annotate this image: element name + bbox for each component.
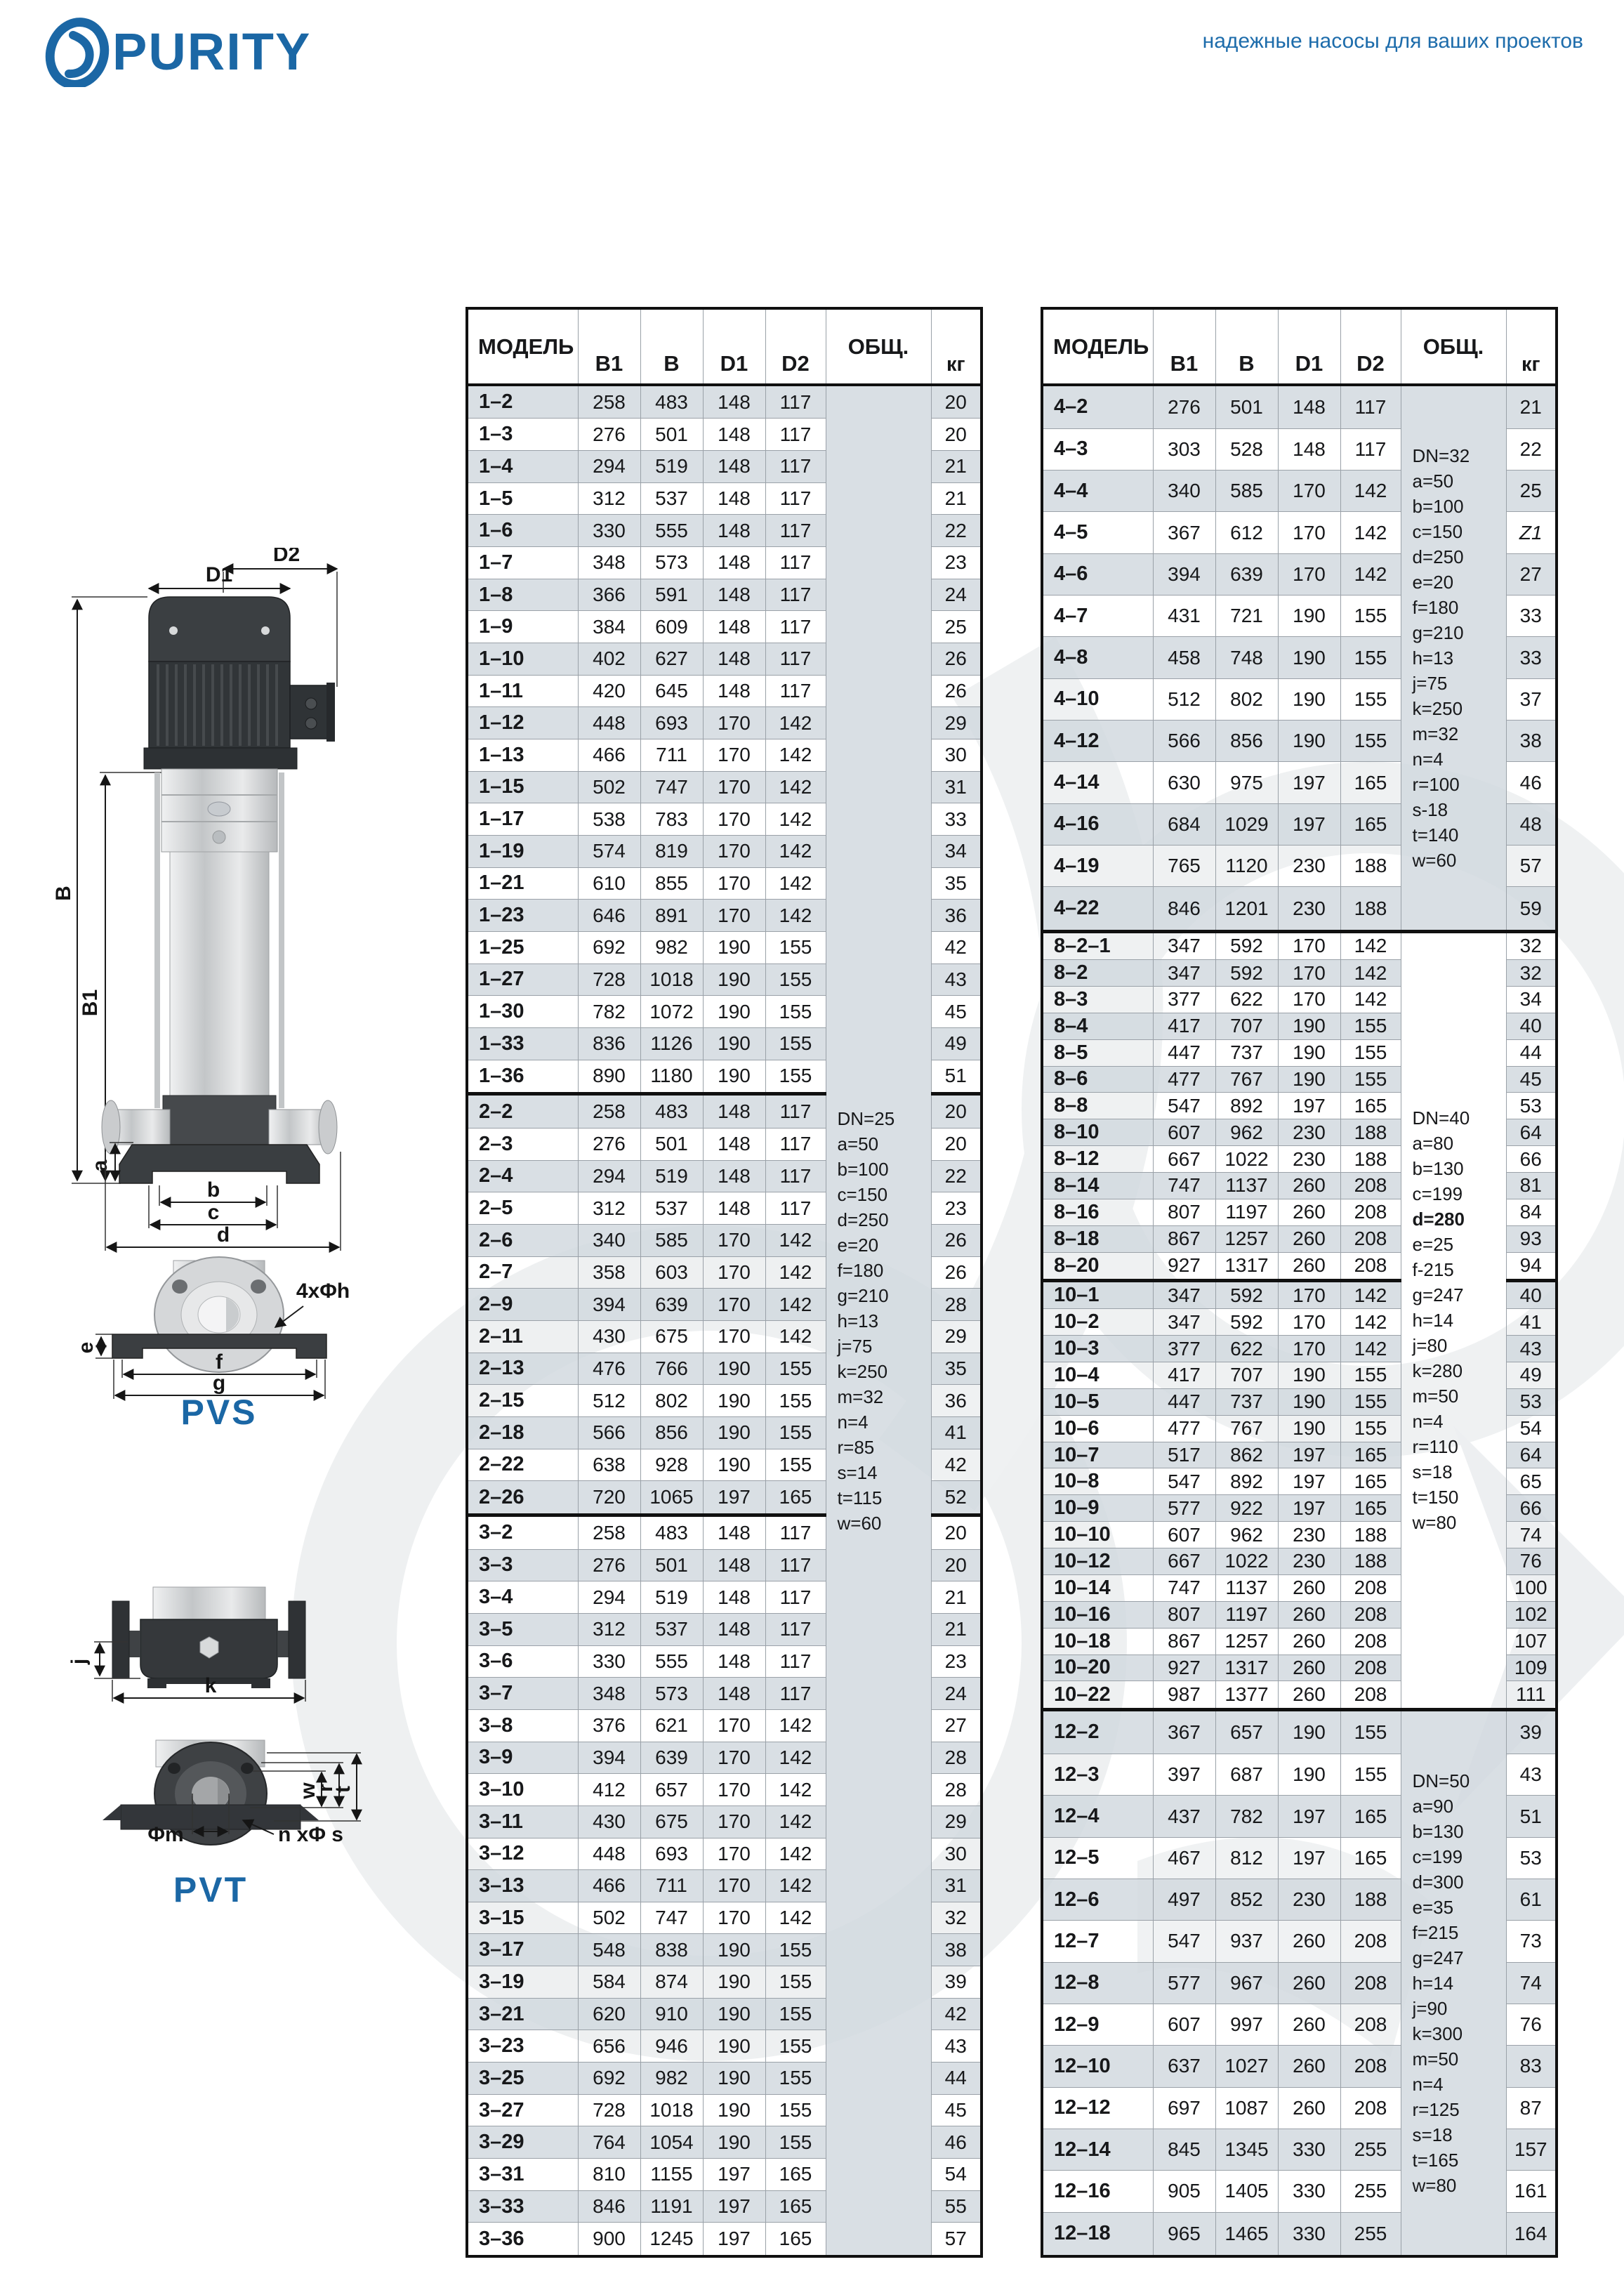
b1-cell: 477 xyxy=(1153,1415,1215,1442)
kg-cell: 43 xyxy=(1506,1336,1557,1362)
model-cell: 4–7 xyxy=(1042,596,1153,637)
d1-cell: 148 xyxy=(703,515,765,547)
kg-cell: 23 xyxy=(931,547,982,579)
kg-cell: 33 xyxy=(1506,596,1557,637)
d2-cell: 165 xyxy=(1340,1093,1401,1119)
note-line: b=100 xyxy=(1413,494,1506,519)
d1-cell: 148 xyxy=(703,1549,765,1581)
model-cell: 10–22 xyxy=(1042,1681,1153,1709)
kg-cell: 161 xyxy=(1506,2171,1557,2212)
note-line: r=85 xyxy=(838,1435,931,1460)
model-cell: 8–18 xyxy=(1042,1225,1153,1252)
kg-cell: 54 xyxy=(931,2159,982,2191)
d1-cell: 148 xyxy=(703,1192,765,1225)
d1-cell: 170 xyxy=(703,1742,765,1774)
note-line: t=165 xyxy=(1413,2147,1506,2173)
model-cell: 8–14 xyxy=(1042,1172,1153,1199)
b1-cell: 610 xyxy=(578,867,640,900)
b-cell: 812 xyxy=(1215,1837,1278,1879)
b-cell: 1137 xyxy=(1215,1172,1278,1199)
pvs-dim-f: f xyxy=(216,1350,223,1374)
d1-cell: 170 xyxy=(703,1224,765,1256)
b1-cell: 431 xyxy=(1153,596,1215,637)
b-cell: 819 xyxy=(640,835,703,867)
d2-cell: 208 xyxy=(1340,1681,1401,1709)
b1-cell: 394 xyxy=(578,1742,640,1774)
d2-cell: 155 xyxy=(765,1449,826,1481)
d2-cell: 155 xyxy=(1340,1066,1401,1093)
model-cell: 10–6 xyxy=(1042,1415,1153,1442)
pvs-dimension-diagram: D2 D1 B B1 a b c d xyxy=(42,548,439,1429)
b-cell: 1072 xyxy=(640,996,703,1028)
b-cell: 1257 xyxy=(1215,1628,1278,1655)
note-line: c=199 xyxy=(1413,1844,1506,1869)
pvs-dim-d1: D1 xyxy=(206,563,232,586)
kg-cell: 43 xyxy=(931,963,982,996)
kg-cell: 21 xyxy=(931,1581,982,1614)
b-cell: 856 xyxy=(1215,721,1278,762)
b-cell: 1257 xyxy=(1215,1225,1278,1252)
kg-cell: 48 xyxy=(1506,803,1557,845)
d1-cell: 190 xyxy=(703,1998,765,2030)
b1-cell: 584 xyxy=(578,1966,640,1999)
note-line: s=18 xyxy=(1413,2122,1506,2147)
d2-cell: 165 xyxy=(765,2159,826,2191)
model-cell: 2–22 xyxy=(467,1449,578,1481)
d1-cell: 230 xyxy=(1278,1879,1340,1921)
d2-cell: 208 xyxy=(1340,1628,1401,1655)
col-header-total: ОБЩ. xyxy=(1401,308,1506,385)
b1-cell: 347 xyxy=(1153,1280,1215,1308)
note-line: b=130 xyxy=(1413,1156,1506,1181)
b-cell: 657 xyxy=(1215,1709,1278,1754)
d2-cell: 155 xyxy=(1340,678,1401,720)
b-cell: 707 xyxy=(1215,1362,1278,1389)
b-cell: 1018 xyxy=(640,2094,703,2126)
col-header-kg: кг xyxy=(1506,308,1557,385)
b-cell: 585 xyxy=(640,1224,703,1256)
note-line: DN=32 xyxy=(1413,443,1506,468)
kg-cell: 38 xyxy=(931,1934,982,1966)
d2-cell: 208 xyxy=(1340,2004,1401,2045)
model-cell: 8–2 xyxy=(1042,960,1153,987)
d1-cell: 148 xyxy=(1278,385,1340,428)
note-line: a=50 xyxy=(838,1131,931,1157)
col-header-b: B xyxy=(1215,308,1278,385)
b1-cell: 437 xyxy=(1153,1796,1215,1837)
d2-cell: 142 xyxy=(765,1805,826,1838)
d1-cell: 190 xyxy=(703,2063,765,2095)
d1-cell: 330 xyxy=(1278,2212,1340,2256)
kg-cell: 37 xyxy=(1506,678,1557,720)
d1-cell: 230 xyxy=(1278,846,1340,887)
kg-cell: 28 xyxy=(931,1774,982,1806)
b-cell: 707 xyxy=(1215,1013,1278,1039)
pvs-bolt-note: 4xΦh xyxy=(296,1280,350,1303)
b-cell: 693 xyxy=(640,1838,703,1870)
b-cell: 967 xyxy=(1215,1962,1278,2004)
header-row: МОДЕЛЬB1BD1D2ОБЩ.кг xyxy=(1042,308,1557,385)
note-line: m=32 xyxy=(838,1384,931,1409)
d1-cell: 190 xyxy=(703,931,765,963)
b-cell: 519 xyxy=(640,451,703,483)
pvt-dim-k: k xyxy=(205,1674,217,1697)
d2-cell: 188 xyxy=(1340,1879,1401,1921)
d1-cell: 230 xyxy=(1278,887,1340,931)
d2-cell: 255 xyxy=(1340,2171,1401,2212)
model-cell: 4–6 xyxy=(1042,553,1153,595)
b1-cell: 377 xyxy=(1153,1336,1215,1362)
b1-cell: 458 xyxy=(1153,637,1215,678)
d1-cell: 260 xyxy=(1278,1655,1340,1681)
model-cell: 8–10 xyxy=(1042,1119,1153,1146)
pvs-dim-d2: D2 xyxy=(273,548,300,566)
kg-cell: 23 xyxy=(931,1192,982,1225)
d1-cell: 170 xyxy=(703,1774,765,1806)
kg-cell: 26 xyxy=(931,1256,982,1289)
b-cell: 892 xyxy=(1215,1093,1278,1119)
b1-cell: 430 xyxy=(578,1805,640,1838)
model-cell: 4–2 xyxy=(1042,385,1153,428)
b-cell: 519 xyxy=(640,1581,703,1614)
d2-cell: 155 xyxy=(765,1998,826,2030)
model-cell: 1–19 xyxy=(467,835,578,867)
b1-cell: 402 xyxy=(578,643,640,676)
model-cell: 2–5 xyxy=(467,1192,578,1225)
b-cell: 621 xyxy=(640,1709,703,1742)
d1-cell: 190 xyxy=(703,2030,765,2063)
b1-cell: 620 xyxy=(578,1998,640,2030)
d2-cell: 208 xyxy=(1340,1962,1401,2004)
d1-cell: 190 xyxy=(1278,1362,1340,1389)
kg-cell: 39 xyxy=(931,1966,982,1999)
table-row: 12–2367657190155DN=50a=90b=130c=199d=300… xyxy=(1042,1709,1557,1754)
b-cell: 627 xyxy=(640,643,703,676)
d1-cell: 170 xyxy=(1278,1336,1340,1362)
model-cell: 10–16 xyxy=(1042,1601,1153,1628)
b1-cell: 476 xyxy=(578,1353,640,1385)
b1-cell: 448 xyxy=(578,707,640,739)
note-line: r=100 xyxy=(1413,772,1506,797)
d1-cell: 197 xyxy=(1278,1796,1340,1837)
pvt-dim-t: t xyxy=(331,1786,355,1793)
b1-cell: 330 xyxy=(578,1645,640,1678)
b-cell: 639 xyxy=(640,1289,703,1321)
b1-cell: 512 xyxy=(1153,678,1215,720)
d2-cell: 117 xyxy=(765,675,826,707)
kg-cell: 34 xyxy=(1506,986,1557,1013)
b1-cell: 547 xyxy=(1153,1921,1215,1962)
b-cell: 1317 xyxy=(1215,1252,1278,1280)
note-line: n=4 xyxy=(1413,2072,1506,2097)
kg-cell: 35 xyxy=(931,1353,982,1385)
table-row: 8–2–1347592170142DN=40a=80b=130c=199d=28… xyxy=(1042,931,1557,959)
kg-cell: 46 xyxy=(931,2126,982,2159)
b-cell: 802 xyxy=(640,1385,703,1417)
kg-cell: 36 xyxy=(931,900,982,932)
note-line: g=210 xyxy=(838,1283,931,1308)
note-line: g=247 xyxy=(1413,1945,1506,1971)
b1-cell: 638 xyxy=(578,1449,640,1481)
d2-cell: 117 xyxy=(765,1515,826,1549)
b-cell: 687 xyxy=(1215,1754,1278,1796)
kg-cell: 83 xyxy=(1506,2046,1557,2087)
d2-cell: 117 xyxy=(765,419,826,451)
d2-cell: 142 xyxy=(765,1256,826,1289)
b-cell: 1317 xyxy=(1215,1655,1278,1681)
b-cell: 962 xyxy=(1215,1522,1278,1548)
b1-cell: 367 xyxy=(1153,1709,1215,1754)
model-cell: 10–5 xyxy=(1042,1388,1153,1415)
b-cell: 852 xyxy=(1215,1879,1278,1921)
d1-cell: 190 xyxy=(703,2094,765,2126)
b-cell: 1027 xyxy=(1215,2046,1278,2087)
d2-cell: 155 xyxy=(1340,1754,1401,1796)
b-cell: 1245 xyxy=(640,2223,703,2256)
model-cell: 8–12 xyxy=(1042,1146,1153,1173)
b-cell: 591 xyxy=(640,579,703,611)
b1-cell: 397 xyxy=(1153,1754,1215,1796)
kg-cell: 51 xyxy=(931,1060,982,1094)
model-cell: 8–6 xyxy=(1042,1066,1153,1093)
b1-cell: 512 xyxy=(578,1385,640,1417)
kg-cell: 76 xyxy=(1506,1548,1557,1575)
pvt-dim-j: j xyxy=(67,1659,91,1665)
b1-cell: 807 xyxy=(1153,1601,1215,1628)
b-cell: 657 xyxy=(640,1774,703,1806)
b1-cell: 927 xyxy=(1153,1655,1215,1681)
note-line: DN=25 xyxy=(838,1106,931,1131)
d2-cell: 117 xyxy=(1340,385,1401,428)
b1-cell: 347 xyxy=(1153,960,1215,987)
kg-cell: 28 xyxy=(931,1289,982,1321)
d1-cell: 190 xyxy=(703,1966,765,1999)
model-cell: 2–7 xyxy=(467,1256,578,1289)
model-cell: 3–11 xyxy=(467,1805,578,1838)
b-cell: 612 xyxy=(1215,512,1278,553)
b-cell: 555 xyxy=(640,515,703,547)
model-cell: 3–33 xyxy=(467,2190,578,2223)
d2-cell: 208 xyxy=(1340,2046,1401,2087)
note-line: f=180 xyxy=(1413,595,1506,620)
note-line: t=115 xyxy=(838,1485,931,1511)
b1-cell: 646 xyxy=(578,900,640,932)
model-cell: 4–3 xyxy=(1042,428,1153,470)
pvt-bolt-note: n xΦ s xyxy=(278,1823,343,1846)
d2-cell: 142 xyxy=(765,1838,826,1870)
d2-cell: 142 xyxy=(765,1224,826,1256)
d1-cell: 170 xyxy=(1278,471,1340,512)
model-cell: 12–4 xyxy=(1042,1796,1153,1837)
model-cell: 4–16 xyxy=(1042,803,1153,845)
kg-cell: 20 xyxy=(931,1128,982,1160)
d1-cell: 197 xyxy=(703,2190,765,2223)
d2-cell: 155 xyxy=(1340,721,1401,762)
d2-cell: 165 xyxy=(765,2223,826,2256)
model-cell: 4–5 xyxy=(1042,512,1153,553)
b-cell: 922 xyxy=(1215,1495,1278,1522)
b1-cell: 637 xyxy=(1153,2046,1215,2087)
b1-cell: 607 xyxy=(1153,2004,1215,2045)
note-line: m=50 xyxy=(1413,1383,1506,1409)
d1-cell: 190 xyxy=(703,2126,765,2159)
model-cell: 3–15 xyxy=(467,1902,578,1934)
b-cell: 592 xyxy=(1215,1309,1278,1336)
b1-cell: 656 xyxy=(578,2030,640,2063)
b1-cell: 276 xyxy=(578,1128,640,1160)
kg-cell: 22 xyxy=(931,1160,982,1192)
b-cell: 1197 xyxy=(1215,1601,1278,1628)
b1-cell: 312 xyxy=(578,1613,640,1645)
b-cell: 609 xyxy=(640,611,703,643)
kg-cell: 57 xyxy=(1506,846,1557,887)
d1-cell: 197 xyxy=(703,2159,765,2191)
d2-cell: 117 xyxy=(765,611,826,643)
kg-cell: 42 xyxy=(931,1449,982,1481)
b-cell: 528 xyxy=(1215,428,1278,470)
b1-cell: 630 xyxy=(1153,762,1215,803)
b-cell: 1377 xyxy=(1215,1681,1278,1709)
kg-cell: 87 xyxy=(1506,2087,1557,2129)
kg-cell: 29 xyxy=(931,1805,982,1838)
b-cell: 838 xyxy=(640,1934,703,1966)
col-header-kg: кг xyxy=(931,308,982,385)
model-cell: 1–30 xyxy=(467,996,578,1028)
b1-cell: 810 xyxy=(578,2159,640,2191)
d2-cell: 155 xyxy=(765,2030,826,2063)
kg-cell: 31 xyxy=(931,771,982,803)
d1-cell: 190 xyxy=(703,996,765,1028)
kg-cell: 31 xyxy=(931,1870,982,1902)
d1-cell: 260 xyxy=(1278,1601,1340,1628)
d1-cell: 148 xyxy=(703,1160,765,1192)
note-line: w=80 xyxy=(1413,1510,1506,1535)
kg-cell: 21 xyxy=(931,1613,982,1645)
note-line: e=35 xyxy=(1413,1895,1506,1920)
b1-cell: 394 xyxy=(578,1289,640,1321)
col-header-d1: D1 xyxy=(1278,308,1340,385)
d1-cell: 148 xyxy=(703,675,765,707)
kg-cell: 66 xyxy=(1506,1495,1557,1522)
b-cell: 622 xyxy=(1215,1336,1278,1362)
b-cell: 856 xyxy=(640,1416,703,1449)
kg-cell: 57 xyxy=(931,2223,982,2256)
b1-cell: 517 xyxy=(1153,1442,1215,1468)
note-line: a=50 xyxy=(1413,468,1506,494)
note-line: r=110 xyxy=(1413,1434,1506,1459)
d2-cell: 142 xyxy=(1340,1336,1401,1362)
kg-cell: 52 xyxy=(931,1481,982,1515)
note-line: n=4 xyxy=(1413,1409,1506,1434)
b1-cell: 538 xyxy=(578,803,640,836)
model-cell: 1–17 xyxy=(467,803,578,836)
note-line: DN=40 xyxy=(1413,1105,1506,1131)
pvs-dim-c: c xyxy=(208,1201,220,1224)
b-cell: 1120 xyxy=(1215,846,1278,887)
b1-cell: 747 xyxy=(1153,1574,1215,1601)
d2-cell: 208 xyxy=(1340,1921,1401,1962)
kg-cell: 21 xyxy=(931,451,982,483)
d1-cell: 190 xyxy=(703,1027,765,1060)
d1-cell: 230 xyxy=(1278,1119,1340,1146)
note-line: n=4 xyxy=(838,1409,931,1435)
d2-cell: 117 xyxy=(765,451,826,483)
b-cell: 1405 xyxy=(1215,2171,1278,2212)
d2-cell: 155 xyxy=(1340,1415,1401,1442)
note-cell: DN=50a=90b=130c=199d=300e=35f=215g=247h=… xyxy=(1401,1709,1506,2256)
model-cell: 1–3 xyxy=(467,419,578,451)
b-cell: 721 xyxy=(1215,596,1278,637)
note-line: b=130 xyxy=(1413,1819,1506,1844)
b1-cell: 890 xyxy=(578,1060,640,1094)
b1-cell: 692 xyxy=(578,2063,640,2095)
d1-cell: 260 xyxy=(1278,2004,1340,2045)
b1-cell: 377 xyxy=(1153,986,1215,1013)
note-cell: DN=32a=50b=100c=150d=250e=20f=180g=210h=… xyxy=(1401,385,1506,931)
d2-cell: 142 xyxy=(765,739,826,772)
b1-cell: 384 xyxy=(578,611,640,643)
note-line: k=250 xyxy=(838,1359,931,1384)
b-cell: 874 xyxy=(640,1966,703,1999)
b-cell: 975 xyxy=(1215,762,1278,803)
model-cell: 3–29 xyxy=(467,2126,578,2159)
d1-cell: 197 xyxy=(1278,803,1340,845)
note-line: h=14 xyxy=(1413,1971,1506,1996)
b-cell: 767 xyxy=(1215,1415,1278,1442)
model-cell: 2–4 xyxy=(467,1160,578,1192)
kg-cell: 41 xyxy=(931,1416,982,1449)
d1-cell: 260 xyxy=(1278,1199,1340,1225)
b-cell: 737 xyxy=(1215,1039,1278,1066)
b-cell: 483 xyxy=(640,1094,703,1129)
kg-cell: 32 xyxy=(1506,931,1557,959)
model-cell: 12–2 xyxy=(1042,1709,1153,1754)
d1-cell: 148 xyxy=(703,482,765,515)
model-cell: 3–36 xyxy=(467,2223,578,2256)
note-line: s=18 xyxy=(1413,1459,1506,1485)
model-cell: 10–3 xyxy=(1042,1336,1153,1362)
kg-cell: 34 xyxy=(931,835,982,867)
d1-cell: 190 xyxy=(1278,637,1340,678)
model-cell: 2–3 xyxy=(467,1128,578,1160)
kg-cell: 84 xyxy=(1506,1199,1557,1225)
d2-cell: 142 xyxy=(1340,960,1401,987)
kg-cell: 30 xyxy=(931,739,982,772)
model-cell: 10–7 xyxy=(1042,1442,1153,1468)
kg-cell: 25 xyxy=(1506,471,1557,512)
b-cell: 1126 xyxy=(640,1027,703,1060)
d2-cell: 165 xyxy=(1340,803,1401,845)
note-line: h=14 xyxy=(1413,1308,1506,1333)
dimensions-table-left: МОДЕЛЬB1BD1D2ОБЩ.кг1–2258483148117DN=25a… xyxy=(466,307,983,2258)
kg-cell: 40 xyxy=(1506,1280,1557,1308)
model-cell: 3–13 xyxy=(467,1870,578,1902)
d1-cell: 170 xyxy=(1278,960,1340,987)
model-cell: 10–4 xyxy=(1042,1362,1153,1389)
b1-cell: 905 xyxy=(1153,2171,1215,2212)
b1-cell: 312 xyxy=(578,482,640,515)
d1-cell: 190 xyxy=(703,963,765,996)
note-line: m=50 xyxy=(1413,2046,1506,2072)
model-cell: 3–2 xyxy=(467,1515,578,1549)
note-line: j=75 xyxy=(838,1334,931,1359)
d2-cell: 142 xyxy=(765,835,826,867)
b-cell: 555 xyxy=(640,1645,703,1678)
note-line: k=250 xyxy=(1413,696,1506,721)
kg-cell: 41 xyxy=(1506,1309,1557,1336)
b1-cell: 466 xyxy=(578,1870,640,1902)
kg-cell: 100 xyxy=(1506,1574,1557,1601)
